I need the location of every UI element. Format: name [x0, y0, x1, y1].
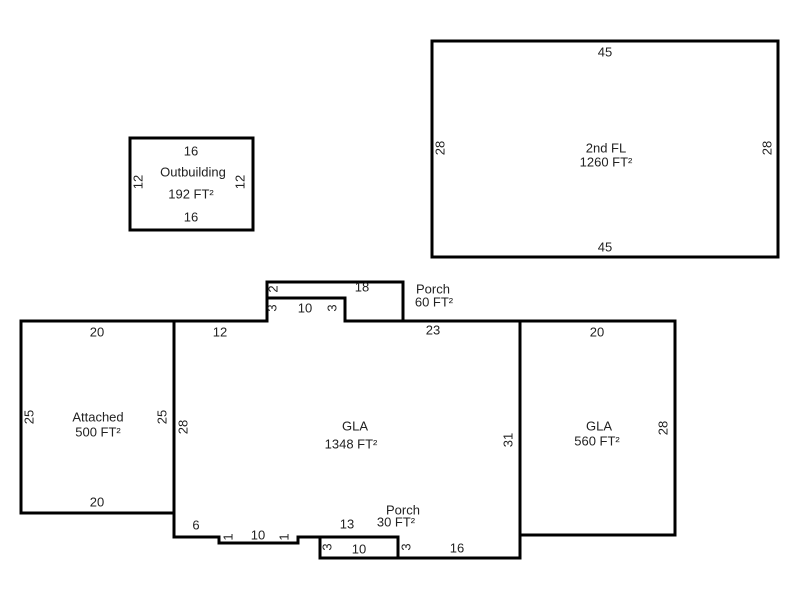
dimension-label-second-floor: 45 [598, 45, 612, 60]
dimension-label-gla-main: 28 [176, 420, 191, 434]
dimension-label-gla-main: 6 [192, 518, 199, 533]
area-label-gla-right: 560 FT² [574, 434, 620, 449]
dimension-label-second-floor: 28 [760, 141, 775, 155]
dimension-label-second-floor: 28 [433, 141, 448, 155]
dimension-label-attached: 25 [155, 410, 170, 424]
dimension-label-porch-top: 2 [266, 285, 281, 292]
dimension-label-porch-top: 10 [298, 301, 312, 316]
dimension-label-gla-main: 31 [501, 433, 516, 447]
dimension-label-attached: 20 [90, 325, 104, 340]
room-label-second-floor: 2nd FL [586, 141, 626, 156]
dimension-label-gla-main: 13 [340, 517, 354, 532]
dimension-label-second-floor: 45 [598, 240, 612, 255]
dimension-label-gla-main: 1 [277, 533, 292, 540]
room-label-attached: Attached [72, 410, 123, 425]
dimension-label-porch-top: 3 [265, 304, 280, 311]
floor-plan-page: 45282nd FL1260 FT²28451612Outbuilding192… [0, 0, 800, 600]
dimension-label-outbuilding: 16 [184, 210, 198, 225]
dimension-label-gla-main: 3 [399, 543, 414, 550]
area-label-second-floor: 1260 FT² [580, 155, 633, 170]
dimension-label-gla-main: 12 [213, 325, 227, 340]
area-label-attached: 500 FT² [75, 425, 121, 440]
room-label-gla-right: GLA [586, 419, 612, 434]
dimension-label-attached: 25 [22, 410, 37, 424]
dimension-label-gla-right: 20 [590, 325, 604, 340]
floor-plan-sketch: 45282nd FL1260 FT²28451612Outbuilding192… [0, 0, 800, 600]
dimension-label-gla-right: 28 [656, 421, 671, 435]
dimension-label-porch-bottom: 3 [320, 543, 335, 550]
dimension-label-porch-top: 3 [325, 304, 340, 311]
area-label-porch-bottom: 30 FT² [377, 515, 416, 530]
dimension-label-gla-main: 23 [426, 323, 440, 338]
dimension-label-gla-main: 16 [450, 541, 464, 556]
dimension-label-outbuilding: 12 [131, 175, 146, 189]
dimension-label-porch-top: 18 [355, 280, 369, 295]
dimension-label-gla-main: 10 [251, 528, 265, 543]
room-label-outbuilding: Outbuilding [160, 165, 226, 180]
dimension-label-outbuilding: 16 [184, 144, 198, 159]
dimension-label-gla-main: 1 [221, 533, 236, 540]
area-label-gla-main: 1348 FT² [325, 437, 378, 452]
room-label-gla-main: GLA [342, 419, 368, 434]
area-label-porch-top: 60 FT² [415, 295, 454, 310]
dimension-label-outbuilding: 12 [233, 175, 248, 189]
dimension-label-porch-bottom: 10 [352, 542, 366, 557]
dimension-label-attached: 20 [90, 495, 104, 510]
area-label-outbuilding: 192 FT² [168, 187, 214, 202]
